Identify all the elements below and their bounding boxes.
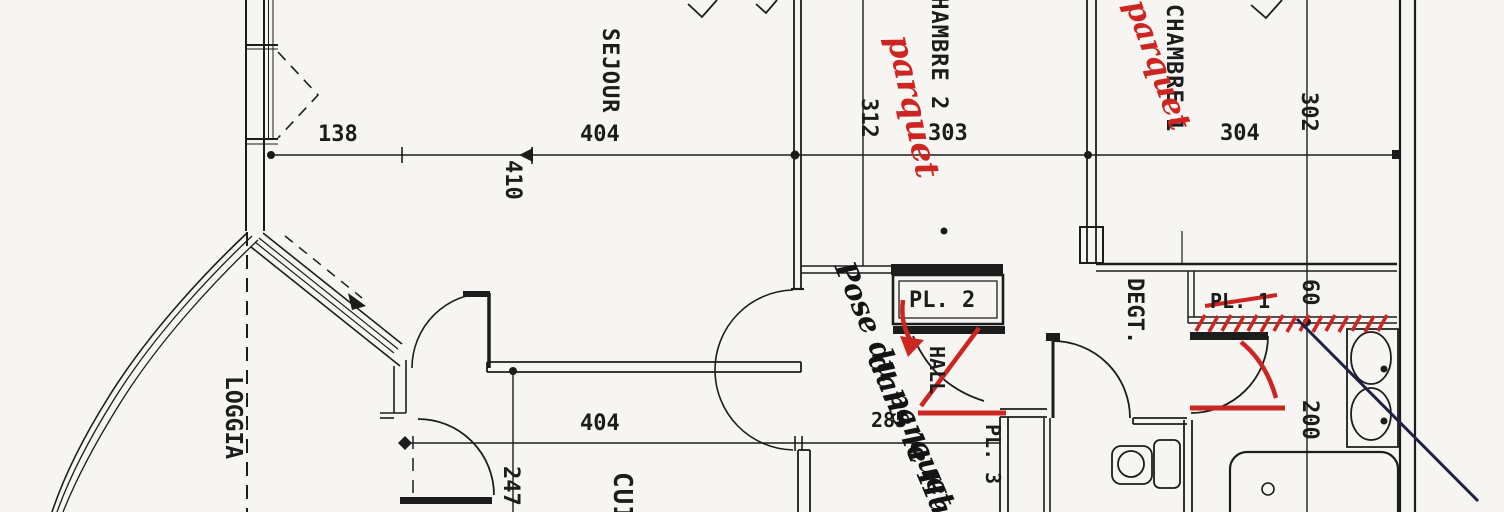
dim-312: 312 [856, 98, 881, 138]
room-labels: SEJOUR CHAMBRE 2 CHAMBRE 1 CUISINE HALL … [220, 0, 1186, 512]
floor-plan-page: SEJOUR CHAMBRE 2 CHAMBRE 1 CUISINE HALL … [0, 0, 1504, 512]
bathtub [1230, 452, 1398, 512]
dim-404-bottom: 404 [580, 411, 620, 436]
pl2-top-wall [891, 264, 1003, 275]
sink-basin-1 [1351, 332, 1391, 384]
bathtub-drain [1262, 483, 1274, 495]
exterior-west-wall-window [245, 0, 318, 231]
dim-302: 302 [1296, 92, 1321, 132]
degagement-doors-walls [1000, 333, 1192, 512]
closet-label-pl2: PL. 2 [909, 288, 975, 313]
dim-200: 200 [1297, 400, 1322, 440]
room-label-degagement: DEGT. [1122, 278, 1147, 344]
wall-pier [1080, 227, 1103, 263]
room-label-hall: HALL [925, 346, 949, 394]
bay-casement-dashed [285, 236, 362, 298]
room-label-loggia: LOGGIA [220, 376, 246, 459]
bathroom-door-leaf [1190, 332, 1268, 340]
window-casement-dashed [278, 52, 318, 138]
period-dot [941, 228, 948, 235]
dim-410: 410 [500, 160, 525, 200]
closet-label-pl3: PL. 3 [981, 424, 1005, 484]
swing-door-arc-lower [715, 370, 793, 450]
kitchen-south-wall [400, 497, 492, 504]
dim-247: 247 [498, 466, 523, 506]
pl2-bottom-wall [893, 326, 1005, 334]
loggia-curved-wall [52, 233, 247, 512]
dim-304: 304 [1220, 121, 1260, 146]
navy-pen-line [1297, 319, 1478, 501]
casement-arrowhead [348, 293, 366, 310]
bathroom-door-arc [1191, 336, 1268, 413]
dimension-chain-top [267, 147, 1401, 164]
dim-60: 60 [1297, 279, 1322, 306]
dim-404-top: 404 [580, 122, 620, 147]
door-arc-tips-top-edge [688, 0, 1282, 18]
loggia-structure [52, 232, 406, 512]
sink-basin-2 [1351, 388, 1391, 440]
sejour-partitions [412, 0, 863, 512]
red-arrow-head [900, 336, 924, 357]
floor-plan-canvas: SEJOUR CHAMBRE 2 CHAMBRE 1 CUISINE HALL … [0, 0, 1504, 512]
room-label-cuisine: CUISINE [607, 472, 637, 512]
handwritten-annotations: parquet parquet Pose du parquet dans le … [828, 0, 1199, 512]
kitchen-lower-walls [400, 419, 494, 504]
closet-label-pl1: PL. 1 [1210, 289, 1270, 313]
swing-door-arc-upper [715, 290, 793, 370]
kitchen-door-arc [418, 419, 494, 495]
toilet-tank [1154, 440, 1180, 488]
degt-door-arc [1053, 341, 1130, 418]
dim-138: 138 [318, 122, 358, 147]
sejour-door-arc [412, 293, 487, 368]
room-label-sejour: SEJOUR [597, 28, 622, 113]
east-wing-walls [1080, 0, 1415, 512]
